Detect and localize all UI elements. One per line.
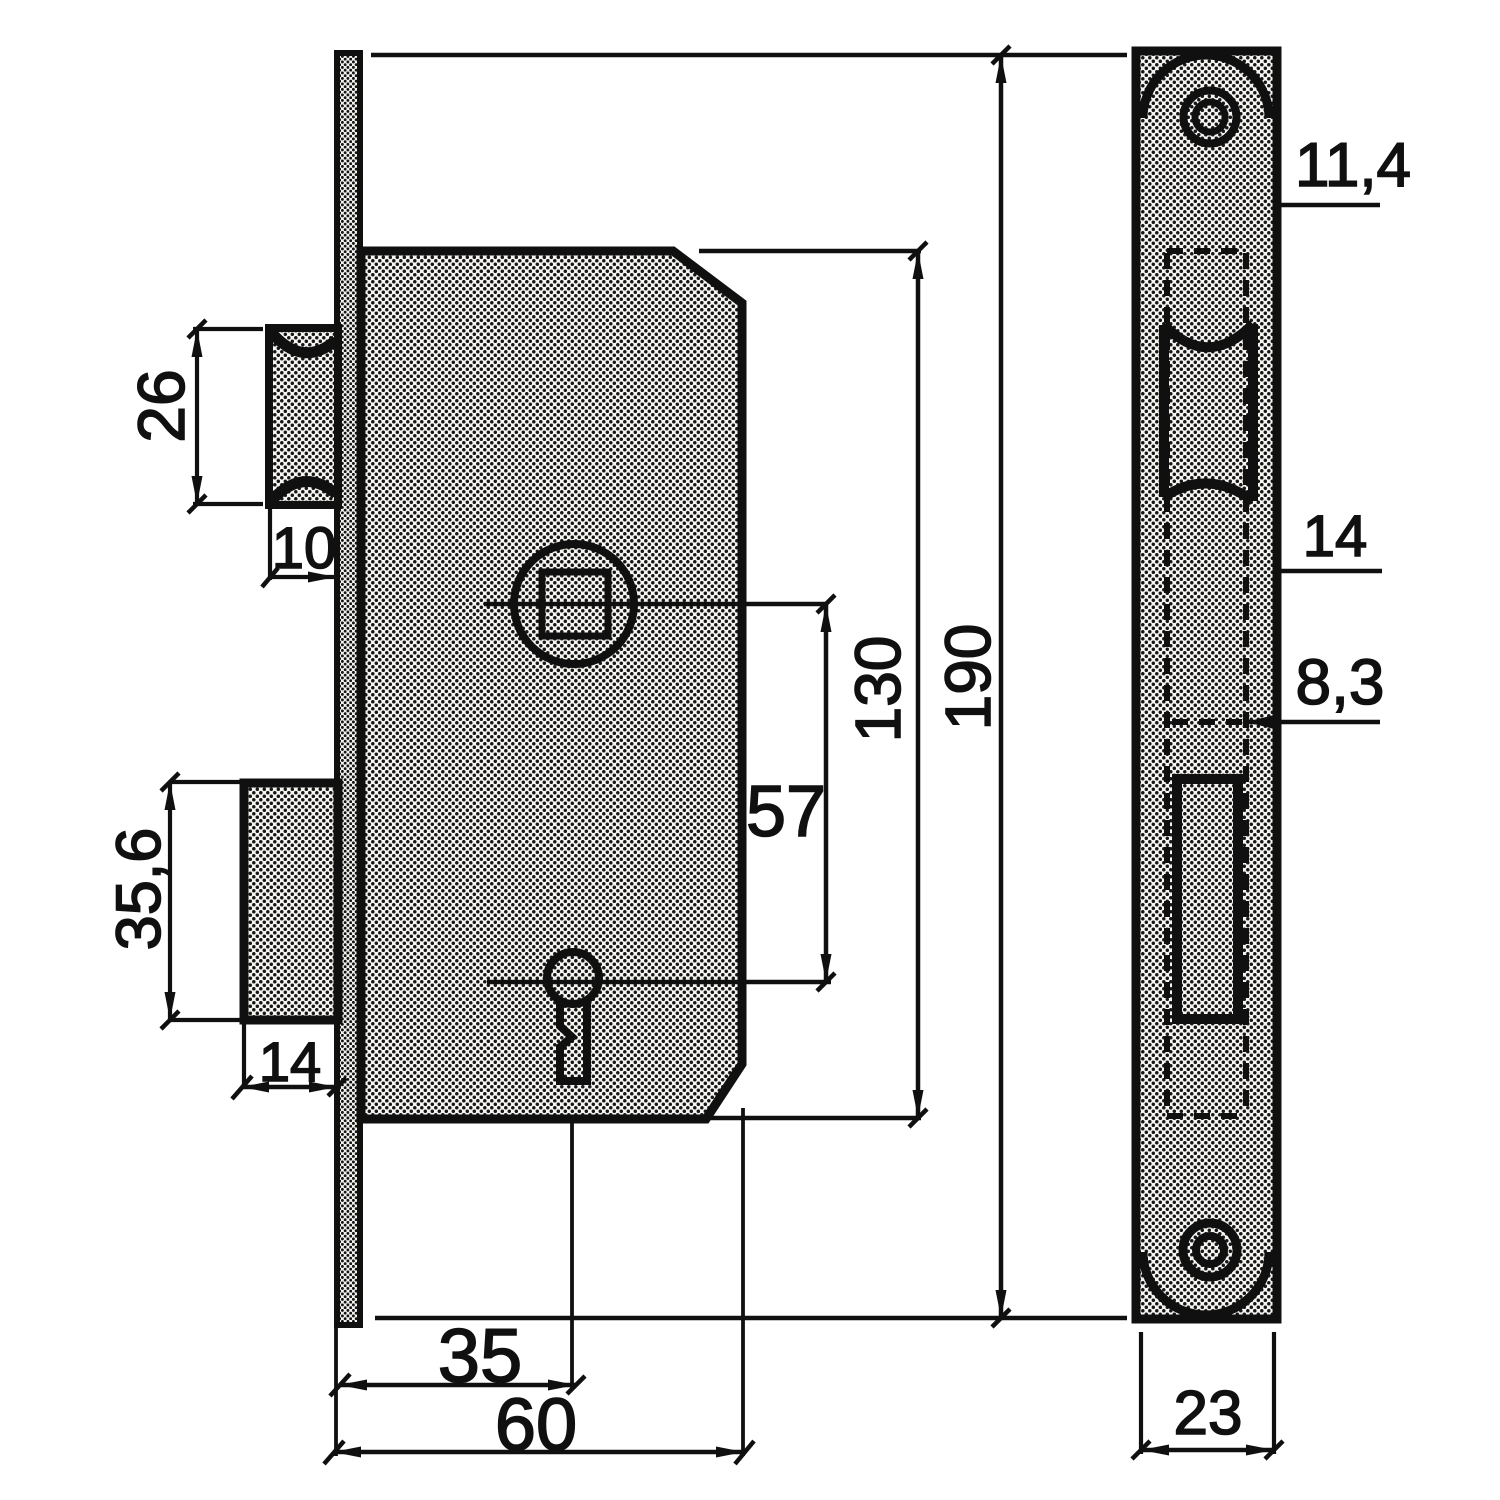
svg-text:23: 23: [1174, 1379, 1243, 1448]
svg-text:14: 14: [1303, 504, 1368, 569]
svg-text:10: 10: [272, 516, 337, 581]
svg-text:190: 190: [932, 624, 1004, 731]
svg-text:8,3: 8,3: [1296, 646, 1385, 718]
svg-text:11,4: 11,4: [1295, 131, 1411, 200]
svg-text:14: 14: [259, 1030, 321, 1093]
svg-text:57: 57: [746, 772, 826, 852]
svg-text:130: 130: [842, 636, 914, 743]
svg-text:26: 26: [124, 369, 198, 442]
svg-text:35,6: 35,6: [104, 828, 174, 951]
svg-text:60: 60: [495, 1383, 577, 1466]
